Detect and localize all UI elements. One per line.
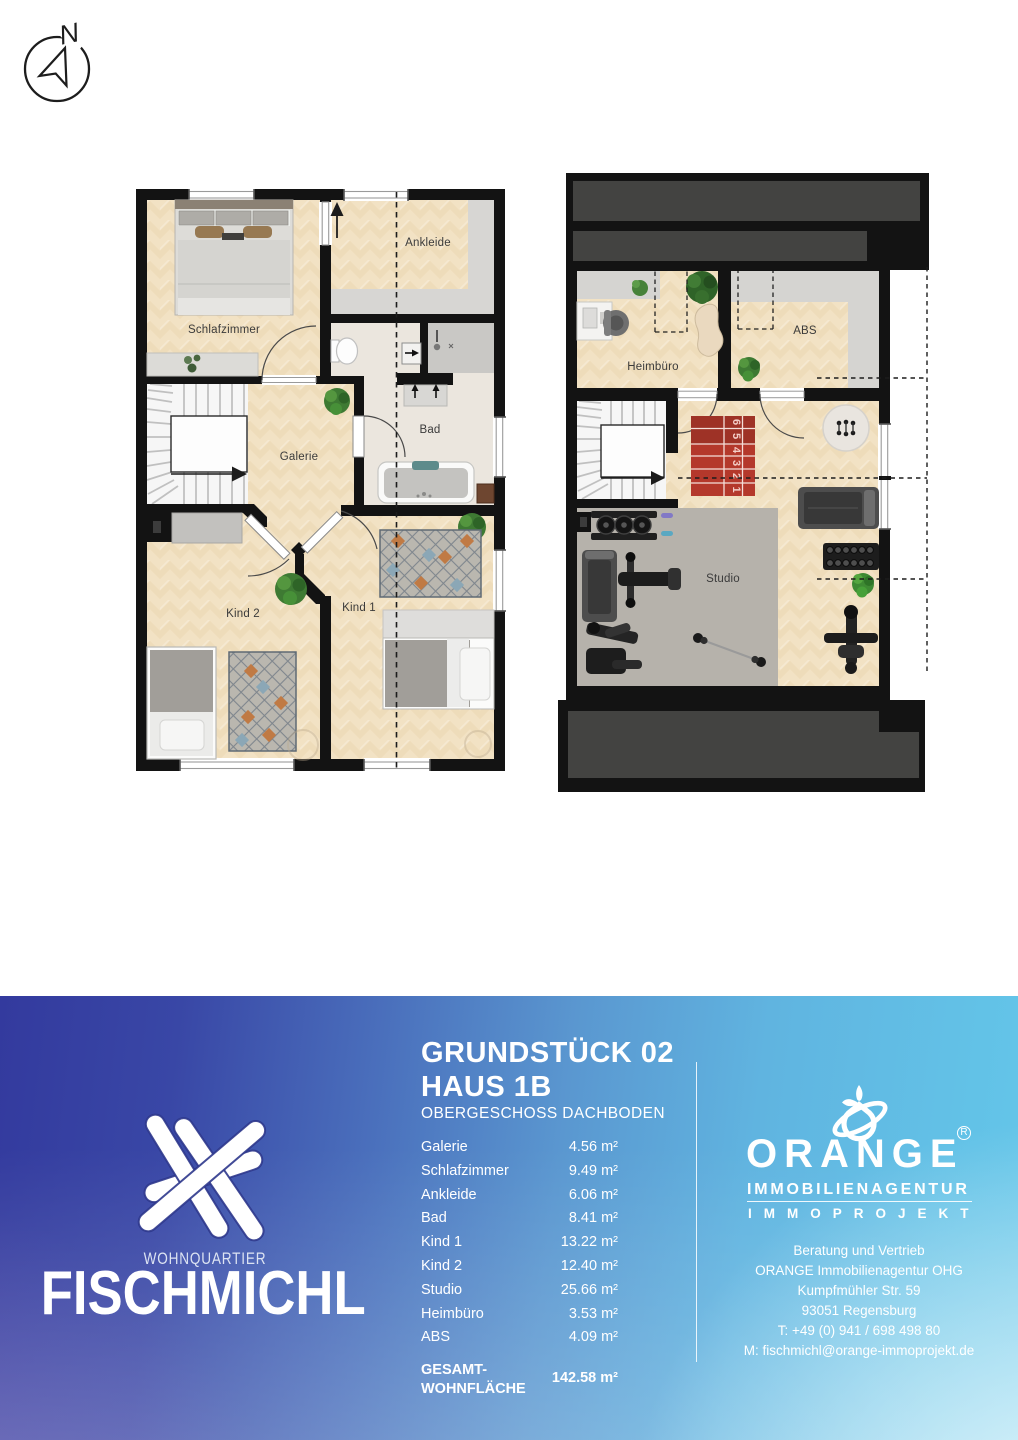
svg-text:6: 6 <box>730 419 742 425</box>
svg-text:Galerie: Galerie <box>280 451 318 463</box>
svg-text:N: N <box>56 17 82 51</box>
svg-text:Heimbüro: Heimbüro <box>627 361 678 373</box>
svg-text:Kind 2: Kind 2 <box>226 608 260 620</box>
svg-text:1: 1 <box>730 486 742 492</box>
svg-text:Schlafzimmer: Schlafzimmer <box>188 324 260 336</box>
svg-text:Kind 1: Kind 1 <box>342 602 376 614</box>
svg-text:ABS: ABS <box>793 325 817 337</box>
svg-text:Ankleide: Ankleide <box>405 237 451 249</box>
svg-text:5: 5 <box>730 433 742 439</box>
svg-text:Studio: Studio <box>706 573 740 585</box>
svg-text:4: 4 <box>730 447 742 454</box>
svg-text:Bad: Bad <box>419 424 440 436</box>
svg-text:3: 3 <box>730 460 742 466</box>
